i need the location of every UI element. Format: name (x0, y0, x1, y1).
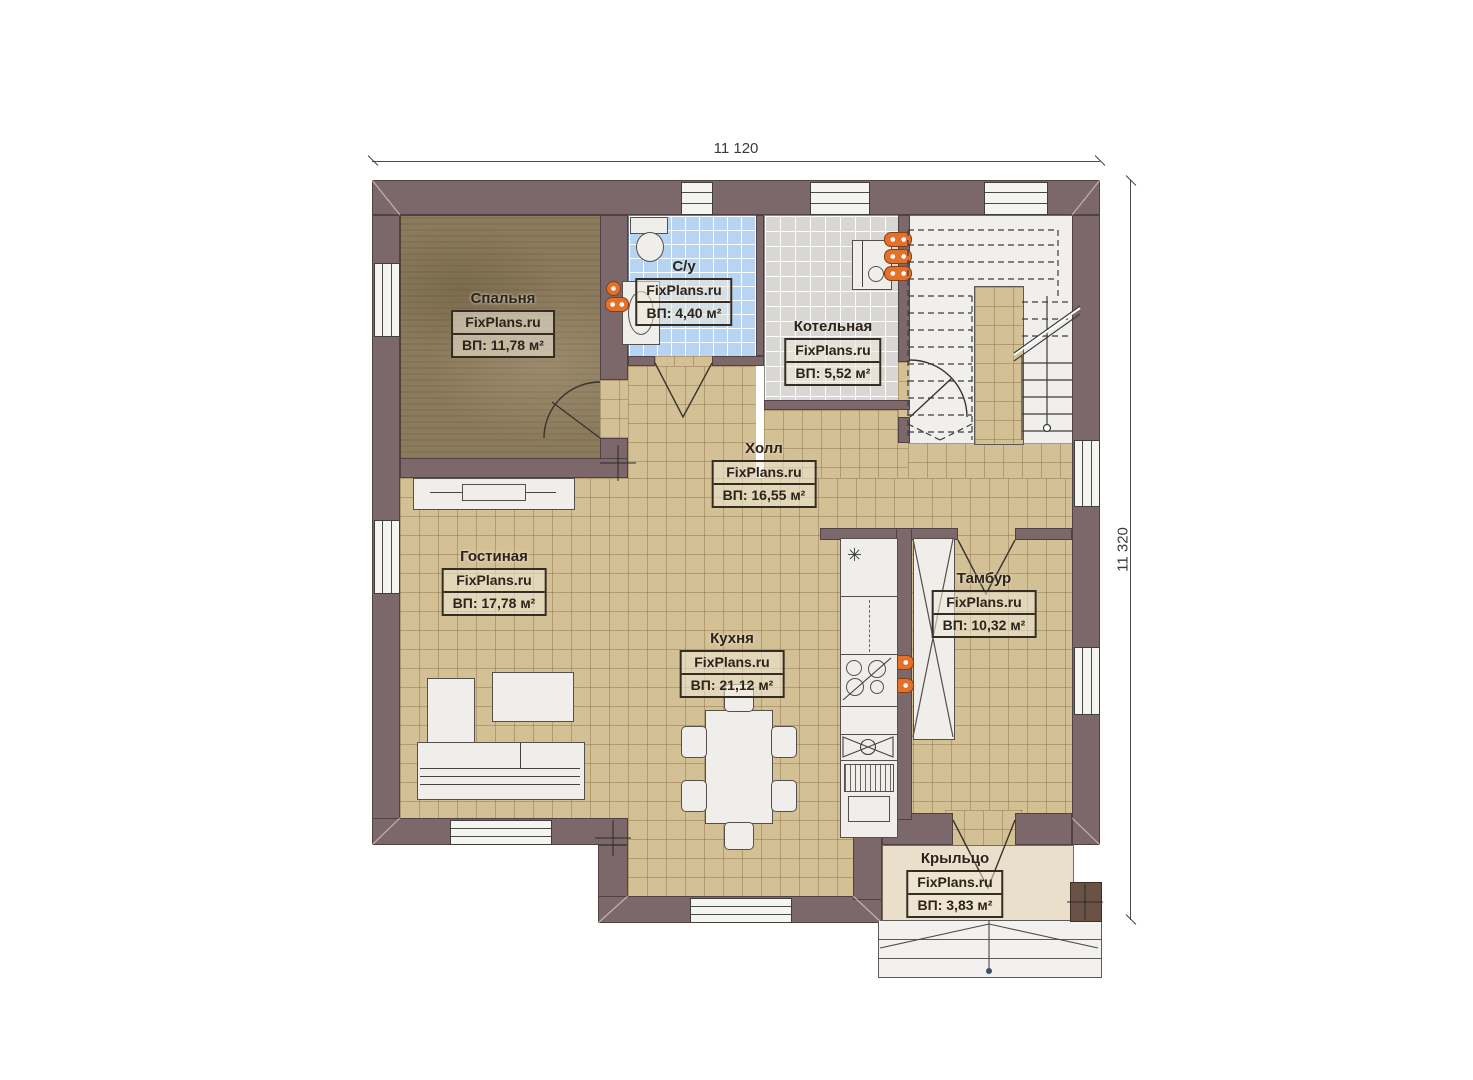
stove-diagonal (843, 658, 891, 700)
room-label-living: Гостиная FixPlans.ru ВП: 17,78 м² (442, 548, 547, 616)
wardrobe-cross (913, 539, 953, 737)
area-text: ВП: 10,32 м² (934, 613, 1035, 636)
dimension-line-top (372, 161, 1100, 162)
room-name: Котельная (784, 318, 881, 335)
kitchen-details (843, 658, 893, 757)
room-label-kitchen: Кухня FixPlans.ru ВП: 21,12 м² (680, 630, 785, 698)
watermark-text: FixPlans.ru (786, 340, 879, 361)
watermark-text: FixPlans.ru (682, 652, 783, 673)
bedroom-door-leaf (552, 402, 600, 438)
room-label-tambour: Тамбур FixPlans.ru ВП: 10,32 м² (932, 570, 1037, 638)
label-box: FixPlans.ru ВП: 3,83 м² (906, 870, 1003, 918)
label-box: FixPlans.ru ВП: 21,12 м² (680, 650, 785, 698)
room-label-bathroom: С/у FixPlans.ru ВП: 4,40 м² (635, 258, 732, 326)
watermark-text: FixPlans.ru (714, 462, 815, 483)
room-name: Крыльцо (906, 850, 1003, 867)
plan-line-overlay (0, 0, 1473, 1080)
room-label-bedroom: Спальня FixPlans.ru ВП: 11,78 м² (451, 290, 555, 358)
watermark-text: FixPlans.ru (444, 570, 545, 591)
label-box: FixPlans.ru ВП: 16,55 м² (712, 460, 817, 508)
area-text: ВП: 5,52 м² (786, 361, 879, 384)
label-box: FixPlans.ru ВП: 17,78 м² (442, 568, 547, 616)
area-text: ВП: 4,40 м² (637, 301, 730, 324)
floor-plan-canvas: ✳ (0, 0, 1473, 1080)
bathroom-door (655, 363, 712, 417)
room-name: Спальня (451, 290, 555, 307)
room-name: Гостиная (442, 548, 547, 565)
label-box: FixPlans.ru ВП: 4,40 м² (635, 278, 732, 326)
staircase-symbol (908, 230, 1080, 440)
axis-cross-marks (595, 445, 1103, 920)
room-name: С/у (635, 258, 732, 275)
room-name: Холл (712, 440, 817, 457)
watermark-text: FixPlans.ru (908, 872, 1001, 893)
label-box: FixPlans.ru ВП: 11,78 м² (451, 310, 555, 358)
room-label-boiler: Котельная FixPlans.ru ВП: 5,52 м² (784, 318, 881, 386)
watermark-text: FixPlans.ru (453, 312, 553, 333)
area-text: ВП: 3,83 м² (908, 893, 1001, 916)
dimension-width-label: 11 120 (636, 140, 836, 157)
room-label-hall: Холл FixPlans.ru ВП: 16,55 м² (712, 440, 817, 508)
stairs-lower-flight (1014, 296, 1080, 440)
watermark-text: FixPlans.ru (934, 592, 1035, 613)
room-label-porch: Крыльцо FixPlans.ru ВП: 3,83 м² (906, 850, 1003, 918)
watermark-text: FixPlans.ru (637, 280, 730, 301)
bedroom-door-arc (544, 382, 600, 438)
room-name: Кухня (680, 630, 785, 647)
label-box: FixPlans.ru ВП: 10,32 м² (932, 590, 1037, 638)
porch-step-lines (880, 920, 1098, 974)
area-text: ВП: 17,78 м² (444, 591, 545, 614)
area-text: ВП: 16,55 м² (714, 483, 815, 506)
dimension-height-label: 11 320 (1115, 500, 1132, 600)
area-text: ВП: 11,78 м² (453, 333, 553, 356)
label-box: FixPlans.ru ВП: 5,52 м² (784, 338, 881, 386)
area-text: ВП: 21,12 м² (682, 673, 783, 696)
room-name: Тамбур (932, 570, 1037, 587)
